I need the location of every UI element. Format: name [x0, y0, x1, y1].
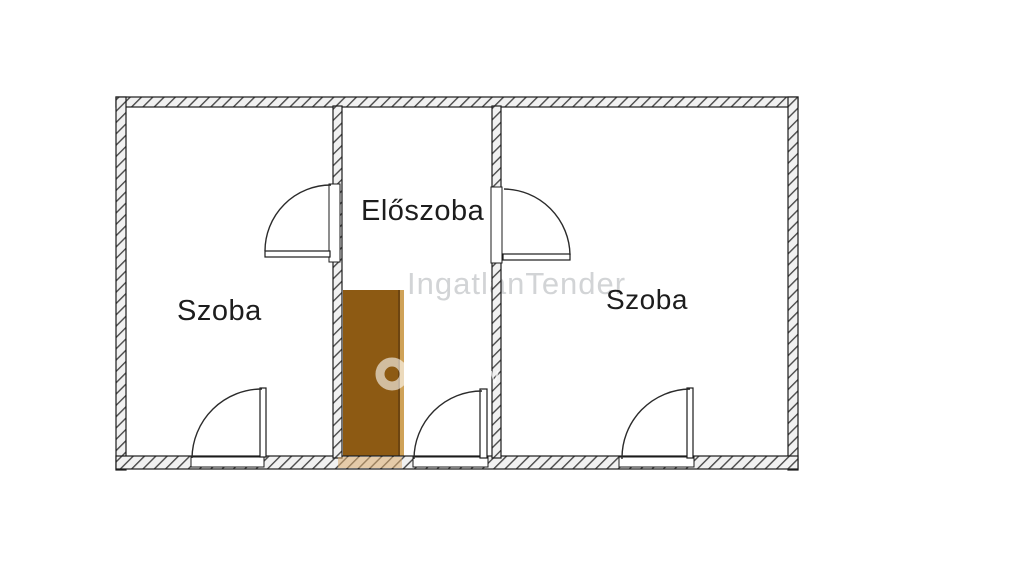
watermark-text: IngatlanTender [407, 266, 626, 301]
door-arc-bottom-left [192, 389, 262, 458]
door-arc-bottom-right [622, 389, 690, 459]
floor-plan: IngatlanTender [0, 0, 1024, 564]
door-opening-right-room [491, 187, 502, 263]
door-opening-bottom-left [191, 457, 264, 467]
door-leaf-left-room [265, 251, 330, 257]
room-label-left: Szoba [177, 295, 262, 328]
door-arc-bottom-middle [414, 391, 482, 459]
wall-partition-right [492, 106, 501, 458]
door-opening-bottom-right [619, 457, 694, 467]
wall-right [788, 97, 798, 470]
wall-tint-under-furniture [338, 457, 402, 468]
door-leaf-bottom-left [260, 388, 266, 457]
room-label-hallway: Előszoba [361, 195, 484, 228]
watermark-overlay-mark: w [482, 363, 499, 388]
furniture-block [343, 290, 404, 458]
furniture-block-body [343, 290, 399, 458]
door-arc-right-room [504, 189, 570, 255]
door-arc-left-room [265, 185, 331, 251]
room-label-right: Szoba [606, 284, 688, 316]
wall-partition-left [333, 106, 342, 458]
door-leaf-bottom-right [687, 388, 693, 458]
door-leaf-right-room [503, 254, 570, 260]
floor-plan-drawing: IngatlanTender [0, 0, 1024, 564]
door-leaf-bottom-middle [480, 389, 487, 458]
door-opening-left-room [329, 184, 340, 262]
wall-left [116, 97, 126, 470]
door-opening-bottom-middle [413, 457, 488, 467]
wall-top [116, 97, 798, 107]
